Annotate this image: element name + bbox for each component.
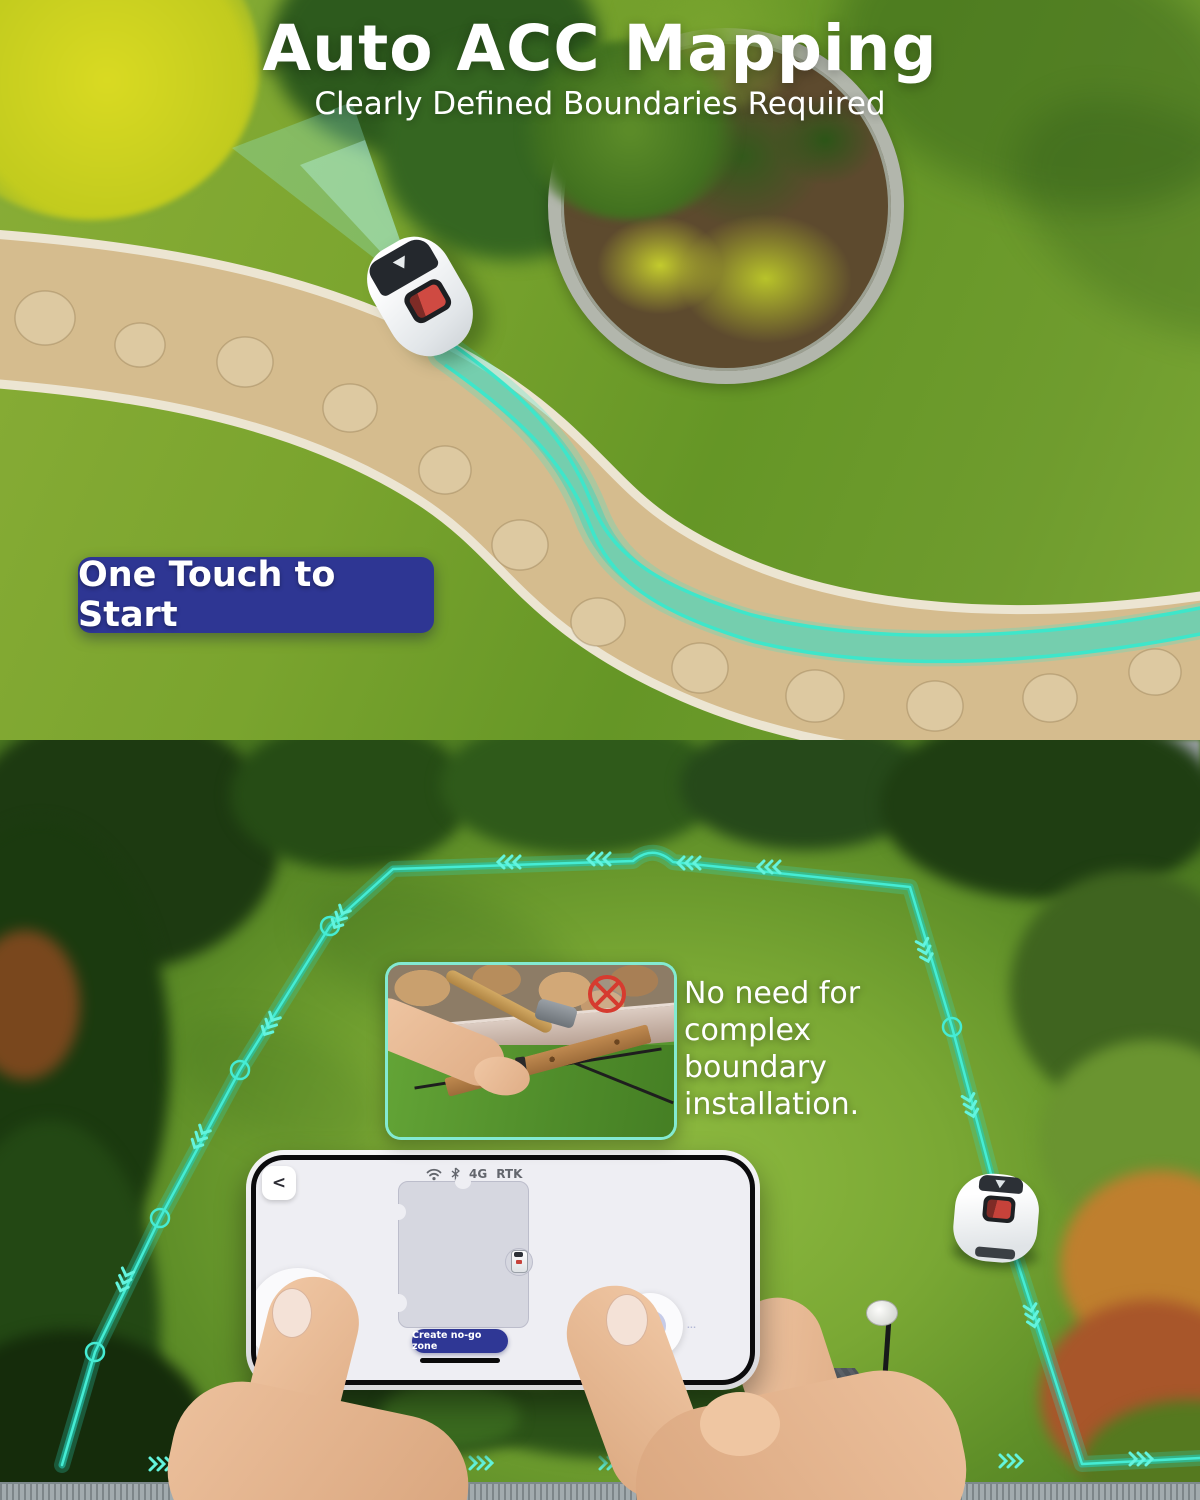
wifi-icon (426, 1168, 442, 1181)
back-icon: < (272, 1173, 286, 1193)
rtk-antenna-disc (866, 1300, 898, 1326)
tree-canopy (440, 740, 720, 855)
boundary-wire-photo (385, 962, 677, 1140)
create-no-go-zone-button[interactable]: Create no-go zone (412, 1329, 508, 1353)
prohibition-icon (584, 971, 630, 1017)
right-knuckle (700, 1392, 780, 1456)
right-thumbnail (606, 1294, 648, 1346)
robot-button-panel (982, 1195, 1016, 1224)
robot-stop-button (986, 1199, 1011, 1219)
home-indicator[interactable] (420, 1358, 500, 1363)
map-robot-marker (511, 1250, 528, 1273)
map-robot-hood (514, 1252, 523, 1257)
map-notch (391, 1204, 406, 1220)
map-notch (455, 1175, 471, 1189)
create-no-go-zone-label: Create no-go zone (412, 1330, 508, 1352)
marketing-image: Auto ACC Mapping Clearly Defined Boundar… (0, 0, 1200, 1500)
robot-logo-mark (393, 256, 411, 273)
back-button[interactable]: < (262, 1166, 296, 1200)
rtk-label: RTK (496, 1167, 522, 1181)
no-wire-callout: No need for complex boundary installatio… (684, 976, 916, 1124)
joystick-right-mark: ··· (687, 1323, 696, 1332)
one-touch-badge: One Touch to Start (78, 557, 434, 633)
network-label: 4G (469, 1167, 487, 1181)
status-bar: 4G RTK (426, 1167, 522, 1181)
auto-section-title: Auto ACC Mapping (0, 12, 1200, 85)
robot-logo-mark (995, 1180, 1006, 1189)
auto-mapping-scene: Auto ACC Mapping Clearly Defined Boundar… (0, 0, 1200, 740)
auto-section-subtitle: Clearly Defined Boundaries Required (0, 86, 1200, 122)
map-robot-button (516, 1260, 522, 1264)
map-notch (390, 1294, 407, 1312)
left-thumbnail (272, 1288, 312, 1338)
robot-mower-following (938, 1165, 1054, 1274)
